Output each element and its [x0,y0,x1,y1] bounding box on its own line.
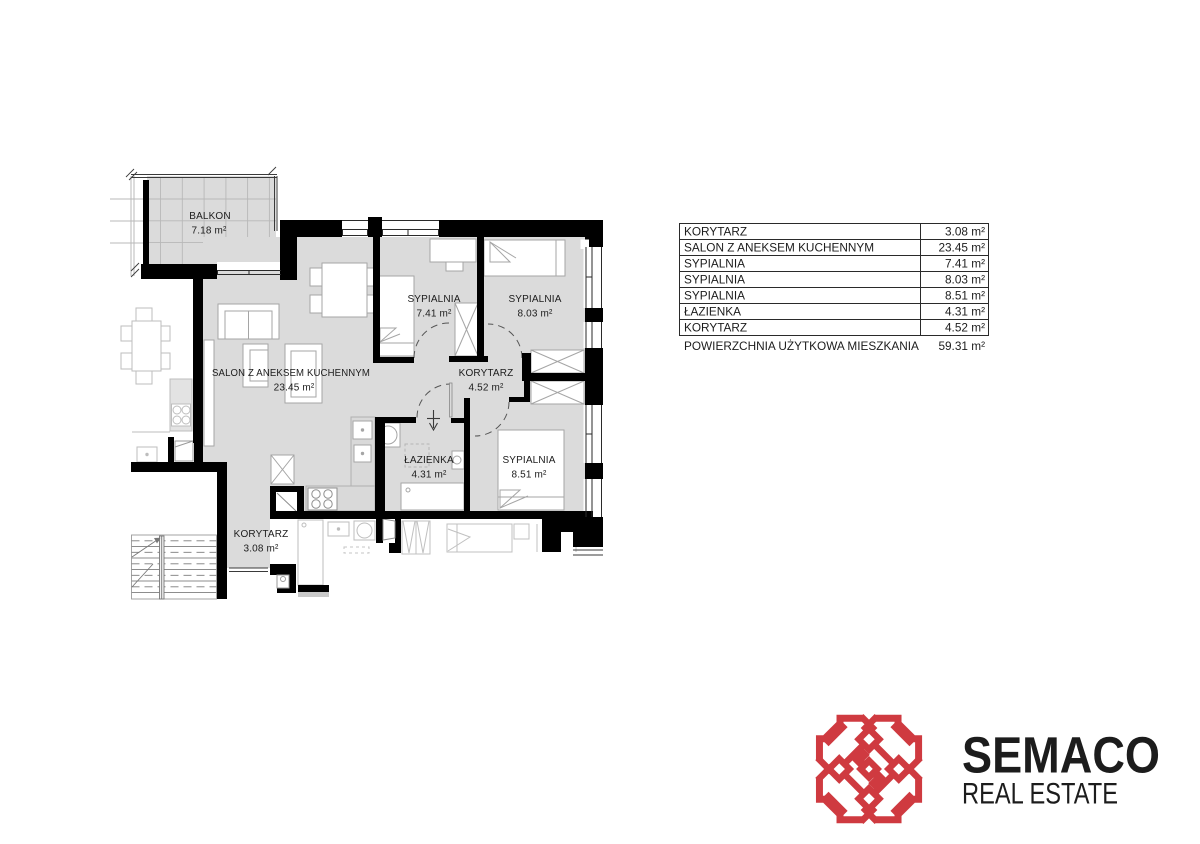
svg-text:KORYTARZ: KORYTARZ [684,321,747,335]
svg-text:KORYTARZ: KORYTARZ [234,529,289,540]
svg-text:4.52 m²: 4.52 m² [945,321,985,335]
svg-text:SEMACO: SEMACO [962,727,1160,784]
svg-text:REAL ESTATE: REAL ESTATE [962,778,1118,811]
svg-text:KORYTARZ: KORYTARZ [459,368,514,379]
svg-text:23.45 m²: 23.45 m² [938,241,985,255]
svg-text:4.52 m²: 4.52 m² [469,383,504,394]
svg-text:4.31 m²: 4.31 m² [412,470,447,481]
svg-text:SALON Z ANEKSEM KUCHENNYM: SALON Z ANEKSEM KUCHENNYM [684,241,874,255]
svg-text:7.18 m²: 7.18 m² [192,226,227,237]
svg-text:8.51 m²: 8.51 m² [945,289,985,303]
svg-text:23.45 m²: 23.45 m² [274,383,315,394]
svg-text:7.41 m²: 7.41 m² [417,309,452,320]
svg-text:3.08 m²: 3.08 m² [244,544,279,555]
svg-text:SYPIALNIA: SYPIALNIA [502,455,555,466]
svg-text:ŁAZIENKA: ŁAZIENKA [684,305,741,319]
svg-text:59.31 m²: 59.31 m² [938,339,985,353]
svg-text:KORYTARZ: KORYTARZ [684,225,747,239]
svg-text:POWIERZCHNIA UŻYTKOWA MIESZKAN: POWIERZCHNIA UŻYTKOWA MIESZKANIA [684,339,919,353]
svg-text:SYPIALNIA: SYPIALNIA [508,294,561,305]
svg-text:ŁAZIENKA: ŁAZIENKA [404,455,454,466]
svg-text:SYPIALNIA: SYPIALNIA [684,257,745,271]
svg-text:8.03 m²: 8.03 m² [945,273,985,287]
svg-text:3.08 m²: 3.08 m² [945,225,985,239]
svg-text:SYPIALNIA: SYPIALNIA [684,289,745,303]
svg-text:8.51 m²: 8.51 m² [512,470,547,481]
svg-text:8.03 m²: 8.03 m² [518,309,553,320]
svg-text:SYPIALNIA: SYPIALNIA [684,273,745,287]
svg-text:SYPIALNIA: SYPIALNIA [407,294,460,305]
svg-text:SALON Z ANEKSEM KUCHENNYM: SALON Z ANEKSEM KUCHENNYM [212,368,370,379]
svg-text:BALKON: BALKON [189,211,230,222]
svg-text:4.31 m²: 4.31 m² [945,305,985,319]
svg-text:7.41 m²: 7.41 m² [945,257,985,271]
